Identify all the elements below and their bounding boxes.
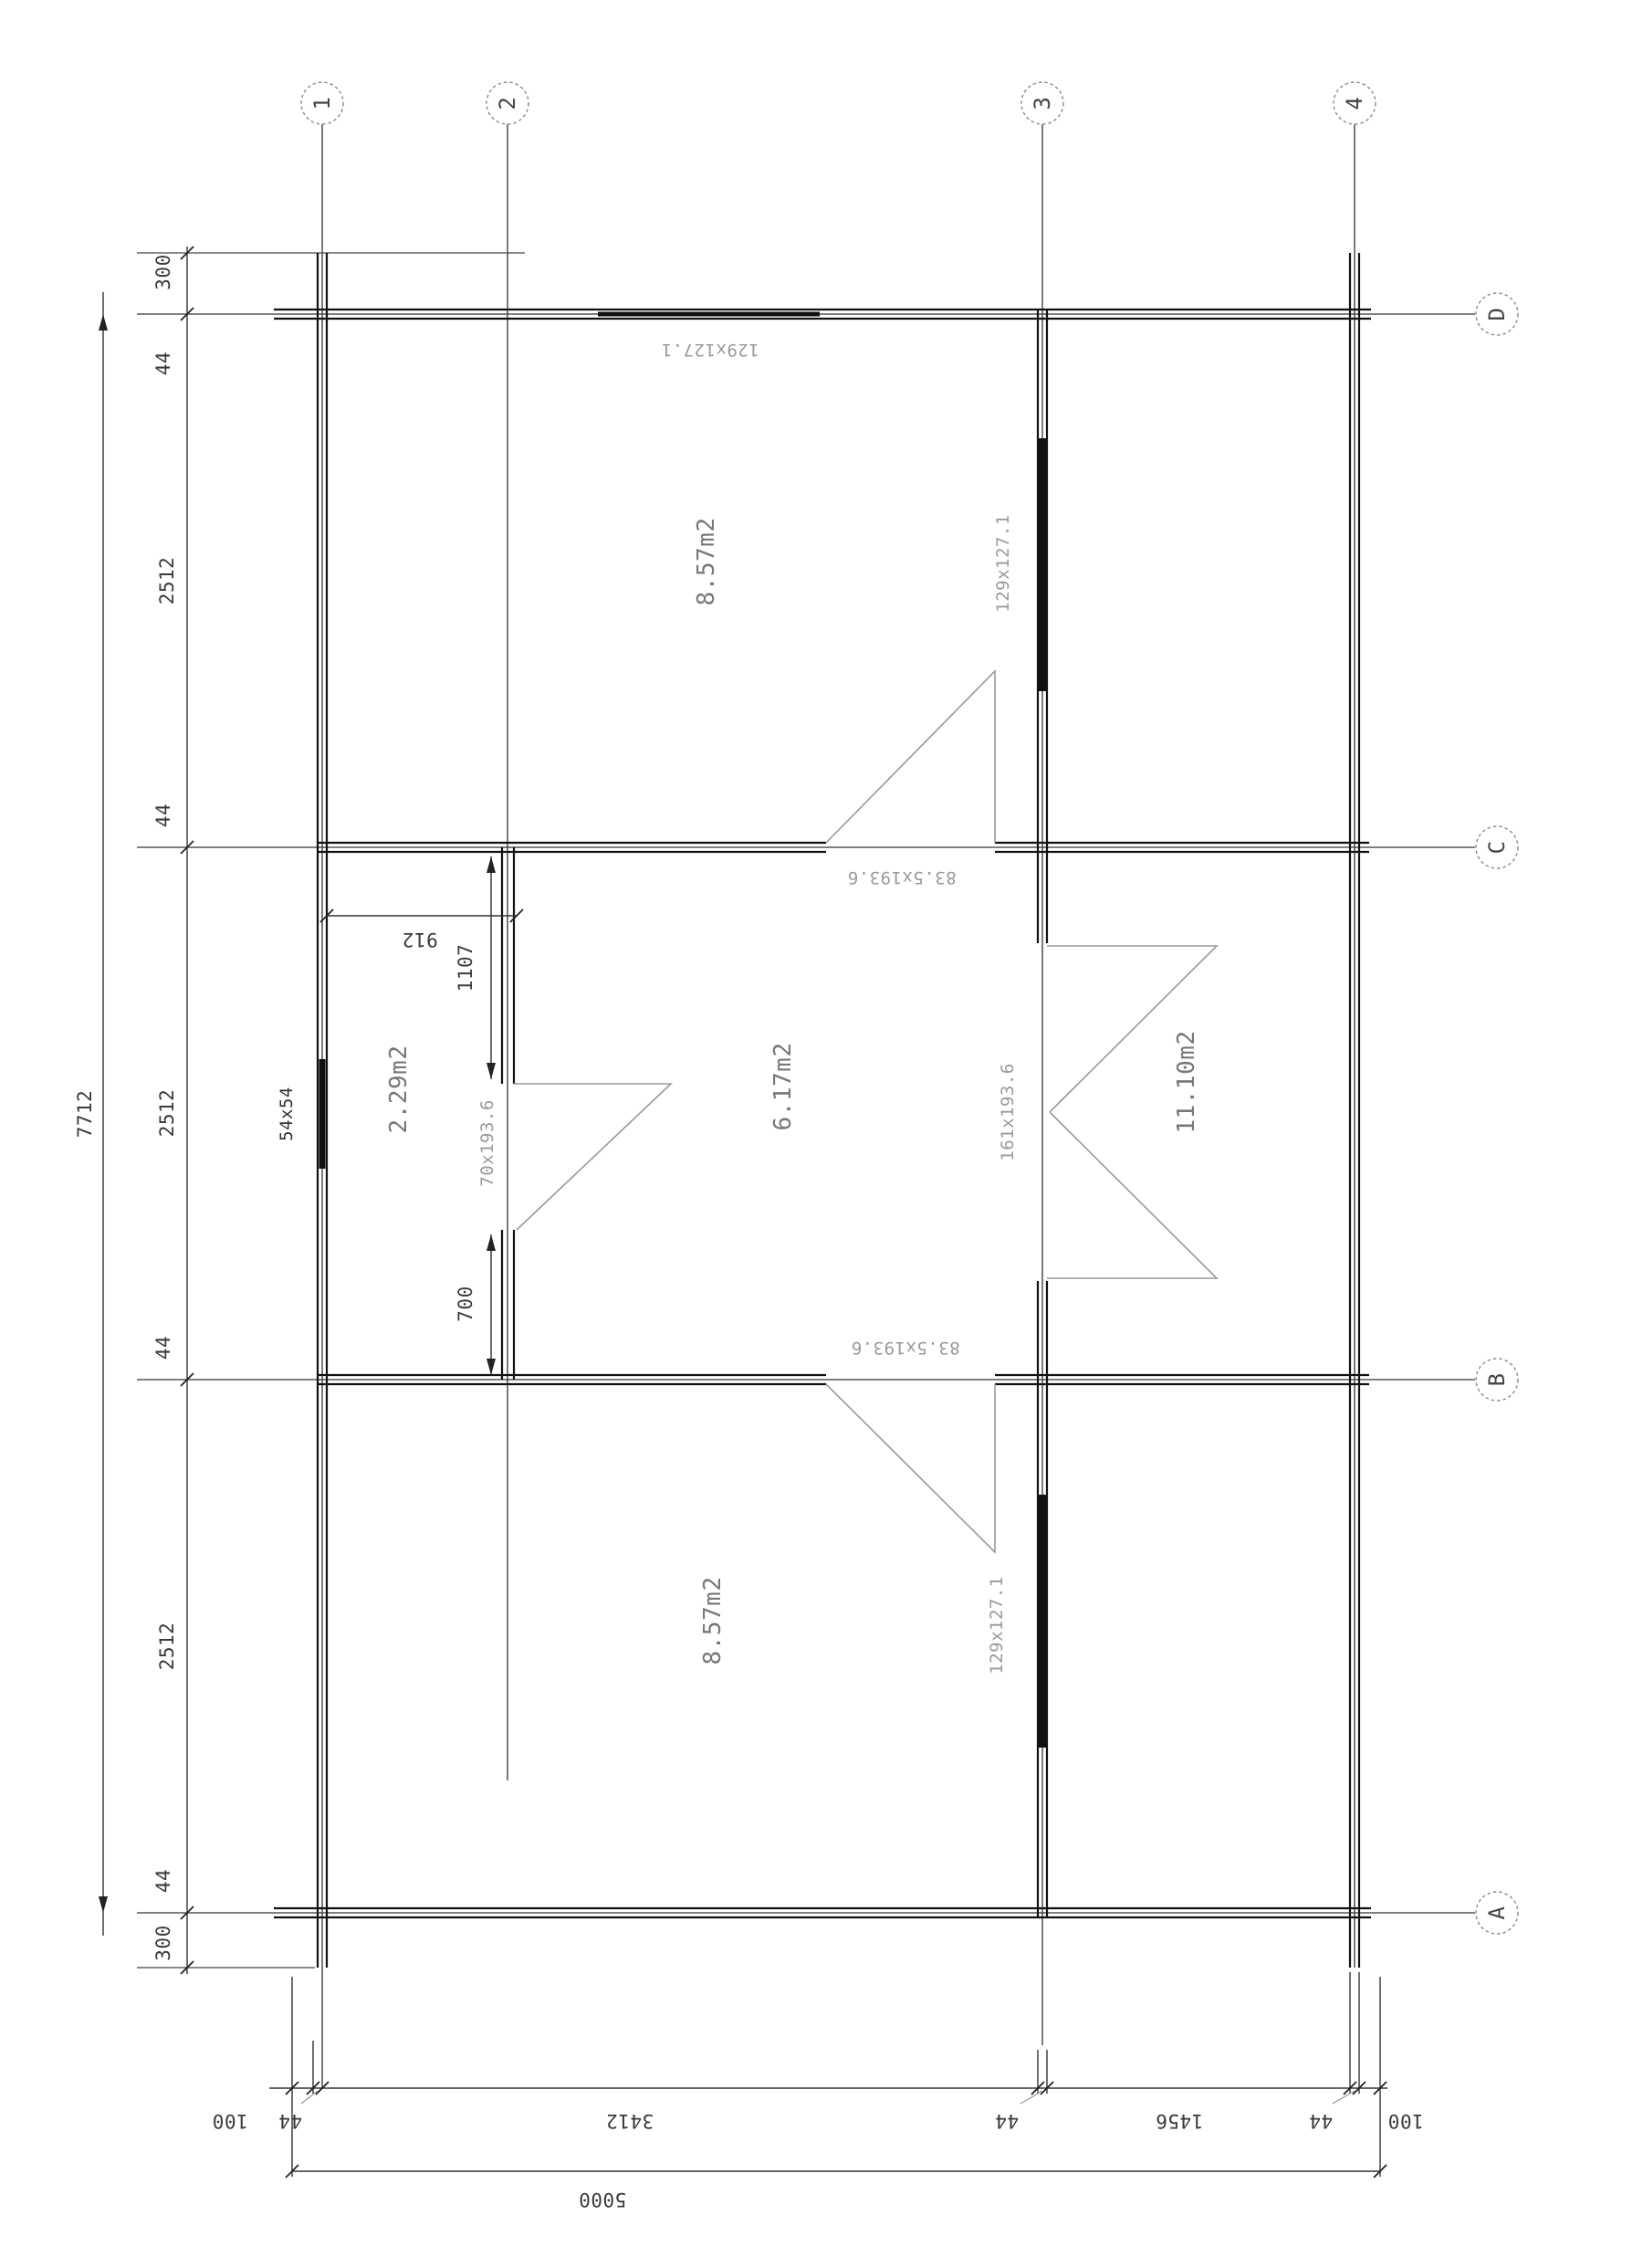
grid-lines — [137, 124, 1475, 2088]
eave-lines — [137, 253, 525, 1968]
dim-44-3: 44 — [995, 2110, 1019, 2132]
label-door-c: 83.5x193.6 — [847, 867, 956, 887]
dim-300-top: 300 — [152, 254, 174, 289]
bottom-dimension-labels: 100 44 3412 44 1456 44 100 5000 — [212, 2110, 1423, 2210]
door-swing-axis3-lower — [1047, 1112, 1217, 1278]
dim-1456: 1456 — [1156, 2110, 1204, 2132]
bubble-label-c: C — [1484, 841, 1510, 855]
door-swings — [514, 671, 1217, 1552]
dim-100-left: 100 — [212, 2110, 247, 2132]
label-window-3-top: 129x127.1 — [993, 514, 1013, 612]
leader-hooks — [301, 2091, 1355, 2104]
dim-2512-dc: 2512 — [156, 557, 178, 605]
window-band-d-wall — [598, 312, 820, 317]
room-top-area: 8.57m2 — [693, 518, 720, 606]
dim-5000: 5000 — [579, 2189, 627, 2210]
dim-44-top: 44 — [152, 352, 174, 375]
dim-44-1: 44 — [278, 2110, 302, 2132]
bubble-label-3: 3 — [1030, 97, 1055, 110]
label-window-d: 129x127.1 — [661, 340, 759, 360]
label-post-54: 54x54 — [277, 1087, 297, 1141]
label-door-3: 161x193.6 — [998, 1063, 1018, 1160]
dim-44-c: 44 — [152, 803, 174, 827]
bubble-label-4: 4 — [1342, 97, 1367, 110]
dimension-ticks — [181, 247, 1387, 2178]
dim-100-right: 100 — [1387, 2110, 1423, 2132]
dim-1107: 1107 — [455, 944, 476, 992]
window-band-axis3-top — [1039, 438, 1046, 691]
dim-3412: 3412 — [606, 2110, 654, 2132]
window-band-axis3-bottom — [1039, 1495, 1046, 1748]
door-swing-partition — [514, 1084, 671, 1230]
label-door-2: 70x193.6 — [477, 1099, 497, 1187]
dim-44-a: 44 — [152, 1869, 174, 1893]
window-bands — [319, 312, 1047, 1748]
room-right-area: 11.10m2 — [1173, 1030, 1200, 1133]
bubble-label-1: 1 — [309, 97, 335, 110]
door-swing-c — [826, 671, 995, 843]
dim-912: 912 — [402, 929, 437, 950]
dim-700: 700 — [455, 1286, 476, 1321]
bubble-label-d: D — [1484, 308, 1510, 321]
partition-dimension-labels: 912 1107 700 — [402, 929, 476, 1322]
room-closet-area: 2.29m2 — [385, 1045, 413, 1134]
opening-labels: 129x127.1 129x127.1 129x127.1 83.5x193.6… — [277, 340, 1018, 1675]
grid-bubble-labels: 1 2 3 4 D C B A — [309, 97, 1510, 1920]
floor-plan: 1 2 3 4 D C B A 300 44 2512 44 2512 44 2… — [0, 0, 1643, 2268]
bubble-label-b: B — [1484, 1373, 1510, 1387]
post-band-axis1 — [319, 1059, 326, 1169]
label-window-3-bot: 129x127.1 — [987, 1576, 1007, 1674]
label-door-b: 83.5x193.6 — [851, 1338, 959, 1358]
room-bottom-area: 8.57m2 — [699, 1577, 727, 1665]
dim-2512-ba: 2512 — [156, 1622, 178, 1671]
dimension-chains — [103, 247, 1387, 2177]
grid-bubbles — [301, 82, 1518, 1934]
bubble-label-2: 2 — [495, 97, 520, 110]
dim-44-4: 44 — [1309, 2110, 1333, 2132]
dim-44-b: 44 — [152, 1336, 174, 1360]
room-middle-area: 6.17m2 — [769, 1043, 797, 1131]
walls — [274, 253, 1371, 1968]
door-swing-b — [826, 1384, 995, 1552]
left-dimension-labels: 300 44 2512 44 2512 44 2512 44 300 7712 — [74, 254, 178, 1960]
dim-300-bot: 300 — [152, 1925, 174, 1960]
bubble-label-a: A — [1484, 1906, 1510, 1919]
dim-7712: 7712 — [74, 1090, 96, 1139]
dim-2512-cb: 2512 — [156, 1089, 178, 1138]
